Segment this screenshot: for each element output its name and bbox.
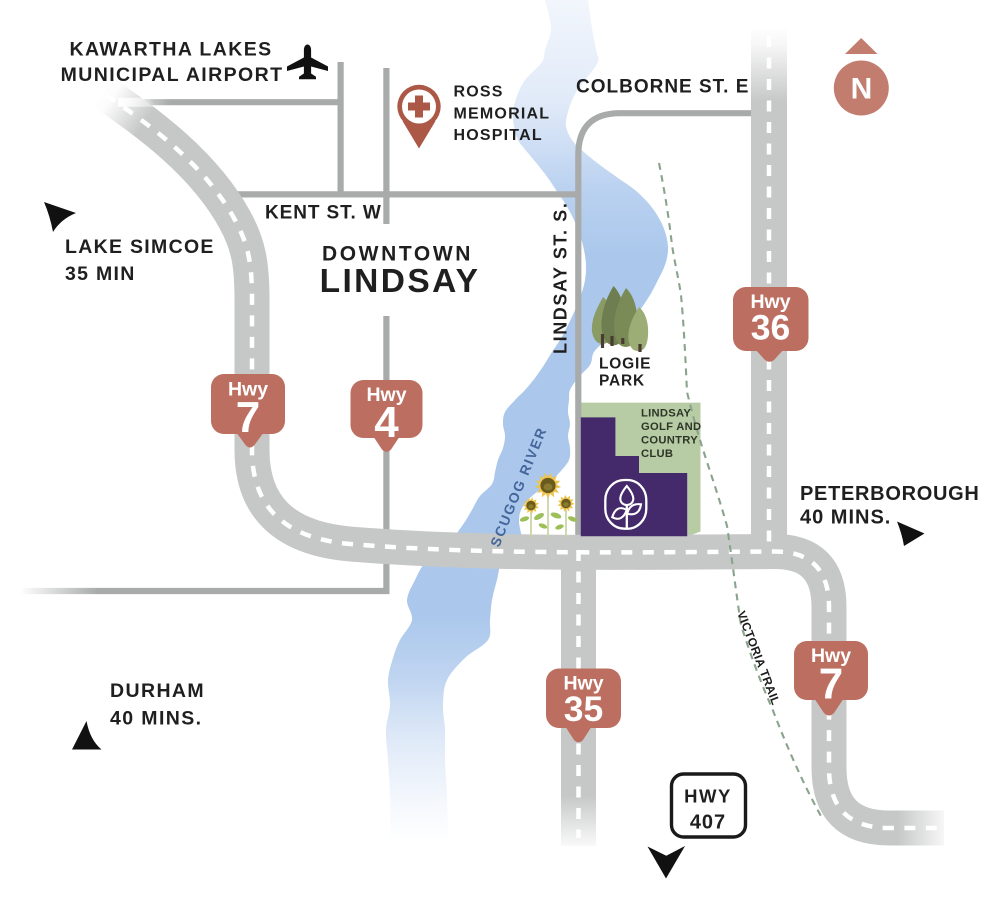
svg-text:MUNICIPAL AIRPORT: MUNICIPAL AIRPORT	[61, 64, 284, 86]
svg-text:LOGIE: LOGIE	[599, 356, 651, 373]
svg-text:HOSPITAL: HOSPITAL	[454, 127, 543, 144]
svg-text:DURHAM: DURHAM	[110, 680, 205, 702]
svg-text:LINDSAY: LINDSAY	[320, 263, 481, 300]
svg-text:CLUB: CLUB	[641, 448, 673, 460]
svg-text:LINDSAY: LINDSAY	[641, 408, 691, 420]
svg-text:KENT ST. W: KENT ST. W	[265, 203, 382, 224]
svg-text:N: N	[851, 73, 873, 106]
svg-text:PETERBOROUGH: PETERBOROUGH	[800, 483, 980, 505]
svg-text:HWY: HWY	[684, 786, 732, 807]
svg-text:407: 407	[690, 812, 726, 834]
svg-text:35 MIN: 35 MIN	[65, 263, 136, 285]
svg-text:36: 36	[751, 308, 791, 348]
svg-text:LAKE SIMCOE: LAKE SIMCOE	[65, 236, 215, 258]
svg-text:KAWARTHA LAKES: KAWARTHA LAKES	[69, 39, 272, 61]
svg-text:4: 4	[374, 398, 399, 447]
svg-text:7: 7	[819, 660, 843, 709]
svg-text:GOLF AND: GOLF AND	[641, 421, 701, 433]
svg-text:LINDSAY ST. S.: LINDSAY ST. S.	[551, 202, 571, 354]
svg-text:MEMORIAL: MEMORIAL	[454, 105, 551, 122]
svg-text:COUNTRY: COUNTRY	[641, 435, 698, 447]
svg-text:COLBORNE ST. E: COLBORNE ST. E	[576, 77, 749, 98]
svg-text:40 MINS.: 40 MINS.	[800, 507, 891, 529]
svg-text:35: 35	[564, 689, 604, 729]
svg-text:ROSS: ROSS	[454, 84, 504, 101]
svg-text:PARK: PARK	[599, 373, 645, 390]
svg-text:7: 7	[236, 393, 260, 442]
svg-text:40 MINS.: 40 MINS.	[110, 708, 202, 730]
